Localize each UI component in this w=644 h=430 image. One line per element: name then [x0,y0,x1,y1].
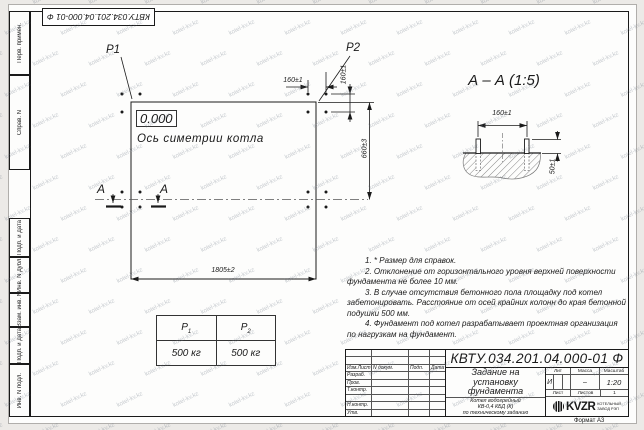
note-line: 4. Фундамент под котел разрабатывает про… [347,319,629,330]
drawing-subtitle: Котел водогрейный КВ-0,4 КБД (К) по техн… [446,398,545,416]
document-number: КВТУ.034.201.04.000-01 Ф [446,350,628,368]
section-cut-marks [106,194,166,207]
company-logo: KVZR КОТЕЛЬНЫЙ ЗАВОД РЭП [546,397,628,416]
margin-cell-podp-data-1: Подп. и дата [9,218,30,257]
bolt-embedded-left [476,154,481,171]
sheet-count-row: Лист Листов 1 [546,390,628,397]
scale-value: 1:20 [600,375,628,389]
format-label: Формат А3 [574,418,604,424]
massa-value: – [571,375,600,389]
signature-header-row: Изм.Лист N докум. Подп. Дата [346,365,445,372]
dim-160-vertical [331,84,355,122]
kvzr-logo-text: KVZR [566,401,595,413]
load-table-value-p2: 500 кг [216,341,276,366]
signature-row-prov: Пров. [346,380,445,387]
margin-cell-sprav-n: Справ. N [9,75,30,170]
margin-cell-perv-primen: Перв. примен. [9,11,30,75]
technical-notes: 1. * Размер для справок. 2. Отклонение о… [347,256,629,340]
load-table-header-p1: P1 [157,316,217,341]
note-line: по нагрузкам на фундамент. [347,330,629,341]
signature-row-utv: Утв. [346,410,445,416]
dim-160-section-text: 160±1 [482,110,522,117]
signature-row-nkontr: Н.контр. [346,402,445,409]
dim-160-h-text: 160±1 [278,77,308,84]
margin-label: Инв. N дубл. [17,257,23,292]
margin-label: Взам. инв. N [17,292,23,327]
margin-label: Подп. и дата [17,328,23,363]
section-letter-left: А [97,182,105,196]
load-table-value-p1: 500 кг [157,341,217,366]
margin-cell-podp-data-2: Подп. и дата [9,327,30,364]
title-block: Изм.Лист N докум. Подп. Дата Разраб. Про… [345,349,629,417]
margin-cell-inv-dubl: Инв. N дубл. [9,257,30,293]
title-block-meta: Лит Масса Масштаб И – 1:20 Лист Листов [546,368,628,416]
foundation-outline [131,102,316,279]
margin-cell-inv-podl: Инв. N подл. [9,364,30,417]
note-line: 1. * Размер для справок. [347,256,629,267]
signature-row-razrab: Разраб. [346,372,445,379]
note-line: забетонировать. Расстояние от осей крайн… [347,298,629,309]
load-table-header-p2: P2 [216,316,276,341]
title-block-name-cell: Задание на установку фундамента Котел во… [446,368,546,416]
revision-row [346,350,445,357]
bolt-right [525,139,530,154]
margin-label: Перв. примен. [17,23,23,63]
symmetry-axis-label: Ось симетрии котла [137,133,264,145]
title-block-right: КВТУ.034.201.04.000-01 Ф Задание на уста… [446,350,628,416]
note-line: 2. Отклонение от горизонтального уровня … [347,267,629,278]
dim-660-text: 660±3 [362,132,369,166]
section-title: А – А (1:5) [459,72,549,89]
kvzr-logo-subtext: КОТЕЛЬНЫЙ ЗАВОД РЭП [597,402,621,410]
top-stamp-text: КВТУ.034.201.04.000-01 Ф [47,12,150,22]
note-line: подушки 500 мм. [347,309,629,320]
meta-value-row: И – 1:20 [546,375,628,390]
margin-cell-vzam-inv: Взам. инв. N [9,293,30,327]
top-stamp: КВТУ.034.201.04.000-01 Ф [42,8,155,26]
elevation-mark: 0.000 [136,110,177,127]
signature-row-tkontr: Т.контр. [346,387,445,394]
load-table: P1 P2 500 кг 500 кг [156,315,276,366]
bolt-left [476,139,481,154]
drawing-sheet-page: Перв. примен. Справ. N Подп. и дата Инв.… [0,0,644,430]
margin-label: Инв. N подл. [17,373,23,408]
lit-value: И [546,375,554,389]
drawing-title: Задание на установку фундамента [446,368,545,398]
title-block-signature-grid: Изм.Лист N докум. Подп. Дата Разраб. Про… [346,350,446,416]
bolt-embedded-right [525,154,530,171]
margin-label: Справ. N [17,110,23,135]
note-line: фундамента не более 10 мм. [347,277,629,288]
section-view [463,121,561,179]
dim-50-section-text: 50±1 [550,152,557,182]
load-point-p1-label: P1 [106,44,120,56]
plan-view [95,56,374,279]
kvzr-emblem-icon [553,401,564,412]
signature-row-blank [346,395,445,402]
load-point-p2-label: P2 [346,42,360,54]
dim-160-v-text: 160±1 [341,60,348,90]
revision-row [346,357,445,364]
meta-header-row: Лит Масса Масштаб [546,368,628,375]
note-line: 3. В случае отсутствия бетонного пола пл… [347,288,629,299]
section-letter-right: А [160,182,168,196]
dim-1805-text: 1805±2 [195,267,251,274]
margin-label: Подп. и дата [17,220,23,255]
